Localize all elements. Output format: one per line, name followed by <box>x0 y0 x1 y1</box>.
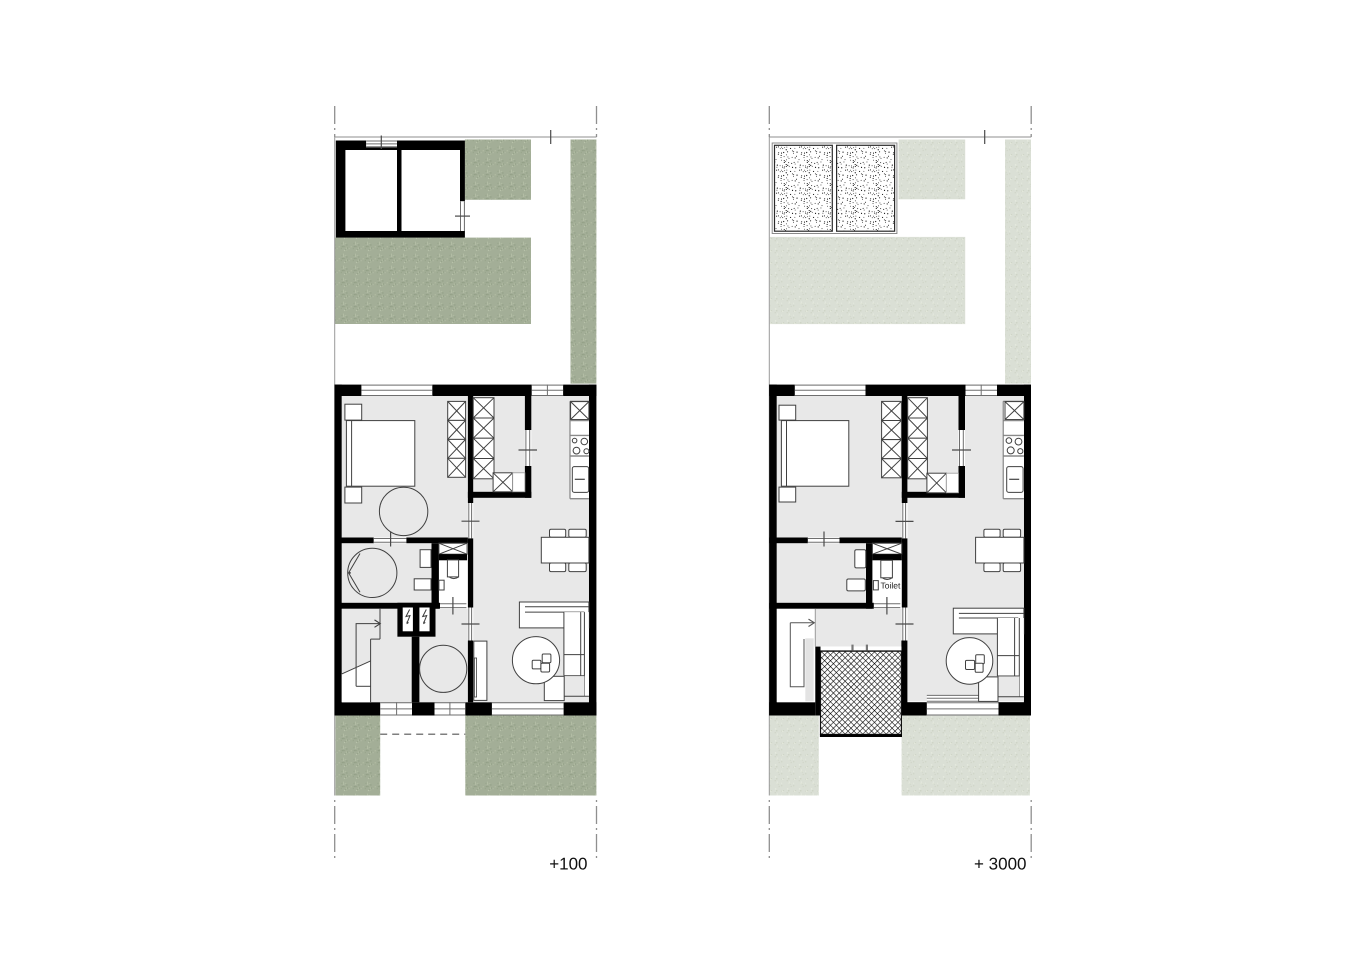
svg-text:Toilet: Toilet <box>881 581 901 591</box>
svg-text:+ 3000: + 3000 <box>974 855 1026 874</box>
svg-text:+100: +100 <box>549 855 587 874</box>
